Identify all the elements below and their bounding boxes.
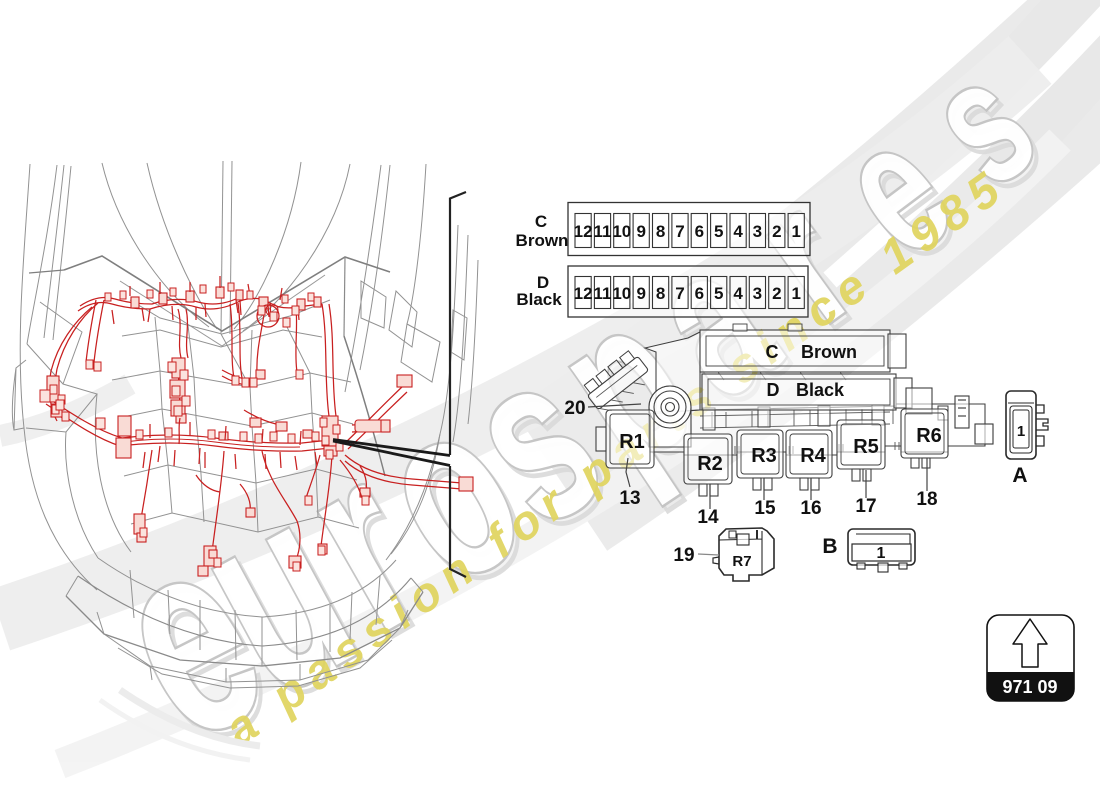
svg-text:R5: R5 (853, 436, 879, 458)
svg-text:3: 3 (753, 284, 762, 303)
svg-text:3: 3 (753, 222, 762, 241)
svg-text:12: 12 (574, 222, 593, 241)
svg-text:2: 2 (772, 222, 781, 241)
svg-text:R6: R6 (916, 425, 942, 447)
svg-text:2: 2 (772, 284, 781, 303)
svg-text:B: B (822, 535, 837, 558)
svg-text:R3: R3 (751, 445, 777, 467)
svg-text:4: 4 (733, 284, 743, 303)
svg-text:10: 10 (612, 284, 631, 303)
svg-text:7: 7 (675, 222, 684, 241)
svg-text:8: 8 (656, 222, 665, 241)
svg-text:C: C (766, 342, 779, 362)
svg-text:A: A (1012, 464, 1027, 487)
svg-text:R4: R4 (800, 445, 826, 467)
svg-text:Black: Black (796, 380, 845, 400)
svg-text:20: 20 (564, 398, 585, 419)
svg-text:971 09: 971 09 (1002, 677, 1057, 697)
svg-text:7: 7 (675, 284, 684, 303)
svg-text:5: 5 (714, 284, 723, 303)
svg-text:1: 1 (791, 284, 800, 303)
svg-text:10: 10 (612, 222, 631, 241)
svg-text:6: 6 (695, 284, 704, 303)
svg-text:6: 6 (695, 222, 704, 241)
svg-text:11: 11 (594, 222, 612, 241)
svg-text:11: 11 (594, 284, 612, 303)
svg-text:1: 1 (877, 545, 886, 562)
svg-text:8: 8 (656, 284, 665, 303)
svg-text:14: 14 (697, 507, 719, 528)
svg-text:C: C (535, 212, 547, 231)
svg-text:R2: R2 (697, 453, 723, 475)
svg-text:4: 4 (733, 222, 743, 241)
svg-text:9: 9 (636, 222, 645, 241)
svg-text:19: 19 (673, 545, 694, 566)
svg-text:16: 16 (800, 498, 821, 519)
svg-text:18: 18 (916, 489, 937, 510)
svg-text:17: 17 (855, 496, 876, 517)
svg-text:13: 13 (619, 488, 640, 509)
svg-text:15: 15 (754, 498, 776, 519)
svg-text:Brown: Brown (516, 231, 569, 250)
svg-text:1: 1 (1017, 423, 1025, 440)
svg-text:D: D (767, 380, 780, 400)
svg-text:Black: Black (516, 290, 562, 309)
svg-text:5: 5 (714, 222, 723, 241)
svg-text:Brown: Brown (801, 342, 857, 362)
svg-text:12: 12 (574, 284, 593, 303)
svg-text:1: 1 (791, 222, 800, 241)
svg-text:R7: R7 (732, 553, 751, 570)
svg-text:9: 9 (636, 284, 645, 303)
svg-text:R1: R1 (619, 431, 645, 453)
